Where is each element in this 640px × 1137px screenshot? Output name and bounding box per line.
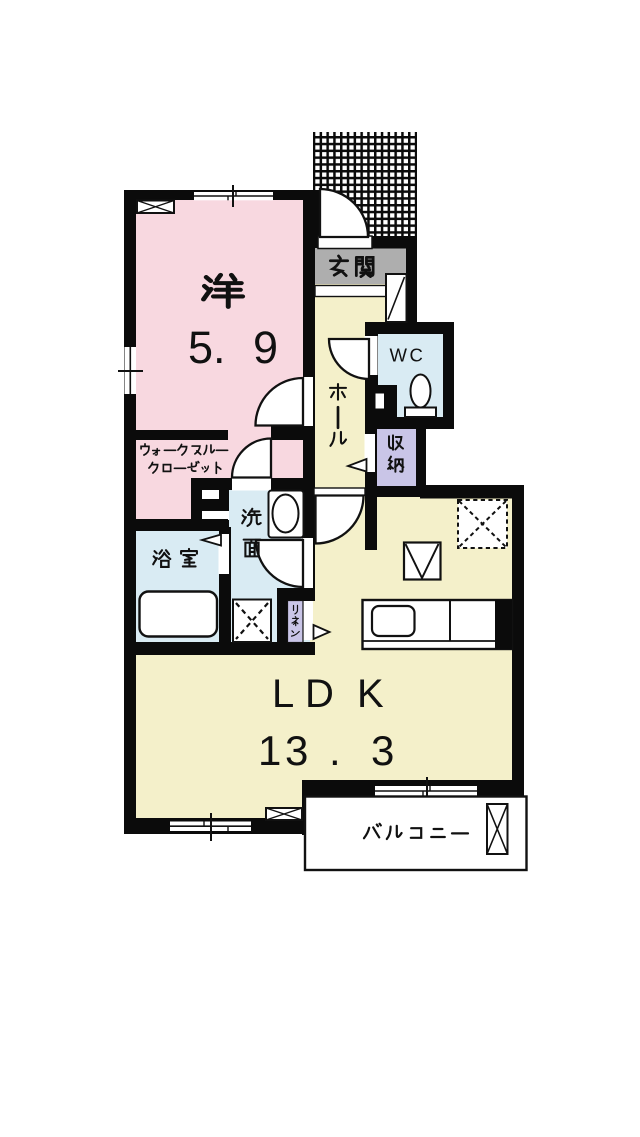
svg-text:3: 3 (371, 727, 394, 774)
svg-text:.: . (329, 727, 341, 774)
svg-text:5: 5 (188, 322, 213, 373)
svg-text:9: 9 (253, 322, 278, 373)
svg-text:1: 1 (258, 727, 281, 774)
svg-text:L: L (272, 672, 294, 716)
svg-text:D: D (305, 672, 334, 716)
svg-text:3: 3 (285, 727, 308, 774)
svg-text:WC: WC (390, 345, 426, 366)
svg-text:K: K (357, 672, 384, 716)
svg-text:.: . (213, 322, 226, 373)
